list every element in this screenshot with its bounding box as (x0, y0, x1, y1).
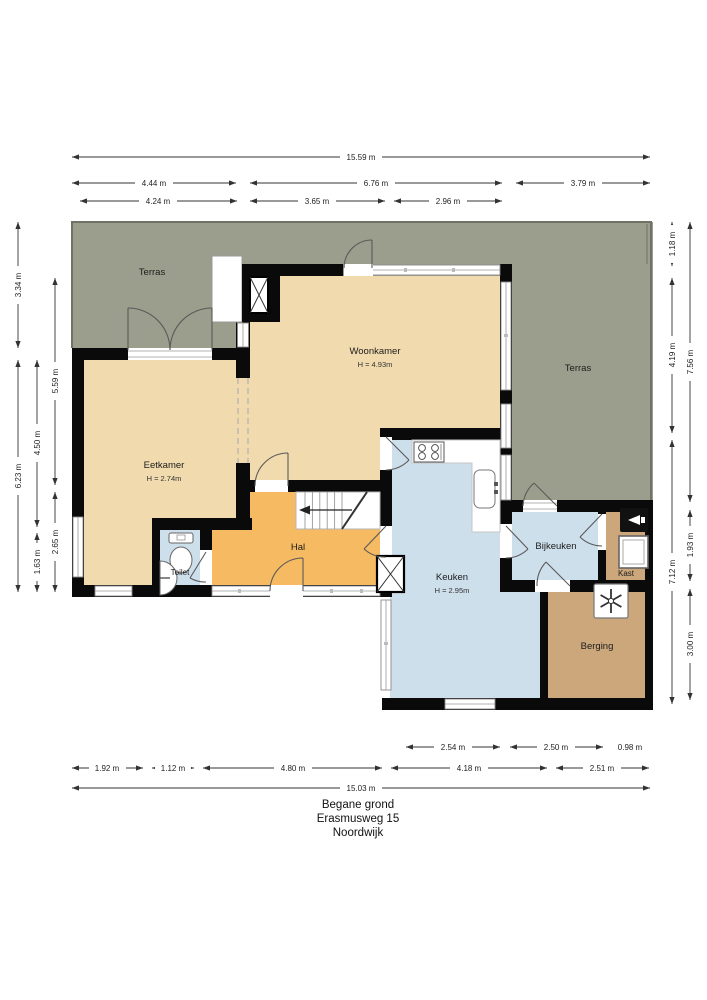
svg-text:2.54 m: 2.54 m (441, 743, 466, 752)
floor-plan-page: Terras Terras Woonkamer H = 4.93m Eetkam… (0, 0, 707, 1000)
dimensions-left: 3.34 m 6.23 m 4.50 m 1.63 m 5.59 m 2.65 … (13, 222, 60, 592)
plan-title-line2: Erasmusweg 15 (317, 813, 399, 825)
svg-text:1.18 m: 1.18 m (668, 231, 677, 256)
dim-right-a: 1.18 m (667, 222, 677, 266)
dim-right-c: 7.12 m (667, 440, 677, 704)
svg-text:4.18 m: 4.18 m (457, 764, 482, 773)
svg-text:7.56 m: 7.56 m (686, 349, 695, 374)
dim-bottom-e: 1.12 m (152, 763, 194, 773)
kitchen-left-window (381, 600, 391, 690)
terrace-right-label: Terras (565, 363, 592, 374)
svg-text:2.65 m: 2.65 m (51, 529, 60, 554)
dim-top-b: 6.76 m (250, 178, 502, 188)
svg-text:4.24 m: 4.24 m (146, 197, 171, 206)
dim-bottom-a: 2.54 m (406, 742, 500, 752)
svg-text:7.12 m: 7.12 m (668, 559, 677, 584)
svg-text:5.59 m: 5.59 m (51, 368, 60, 393)
dim-bottom-b: 2.50 m (510, 742, 603, 752)
dimensions-bottom: 2.54 m 2.50 m 0.98 m 1.92 m 1.12 m 4.80 … (72, 742, 650, 793)
dimensions-right: 1.18 m 4.19 m 7.12 m 7.56 m 1.93 m 3.00 … (667, 222, 695, 704)
svg-text:1.93 m: 1.93 m (686, 532, 695, 557)
dim-left-f: 2.65 m (50, 492, 60, 592)
closet-label: Kast (618, 569, 635, 578)
meter-icon (620, 508, 648, 532)
dim-top-f: 2.96 m (394, 196, 502, 206)
utility-terrace-door-opening (523, 500, 557, 512)
svg-text:0.98 m: 0.98 m (618, 743, 643, 752)
svg-text:2.51 m: 2.51 m (590, 764, 615, 773)
dim-top-e: 3.65 m (250, 196, 385, 206)
kitchen-right-window (501, 455, 511, 500)
svg-text:15.59 m: 15.59 m (347, 153, 376, 162)
storage-room-label: Berging (581, 641, 614, 652)
dim-left-d: 1.63 m (32, 533, 42, 592)
dim-right-e: 1.93 m (685, 510, 695, 581)
svg-text:4.50 m: 4.50 m (33, 430, 42, 455)
plan-title-line3: Noordwijk (333, 827, 384, 839)
floor-plan: Terras Terras Woonkamer H = 4.93m Eetkam… (0, 0, 707, 1000)
sink-icon (474, 470, 498, 508)
boiler-icon (619, 536, 648, 568)
dim-right-f: 3.00 m (685, 589, 695, 700)
duct-icon (377, 556, 404, 592)
svg-text:2.96 m: 2.96 m (436, 197, 461, 206)
utility-room-label: Bijkeuken (535, 541, 576, 552)
dim-left-b: 6.23 m (13, 360, 23, 592)
dim-top-d: 4.24 m (80, 196, 237, 206)
svg-text:4.44 m: 4.44 m (142, 179, 167, 188)
kitchen-bottom-window (445, 699, 495, 709)
living-room-top-window (372, 265, 500, 275)
dim-top-c: 3.79 m (516, 178, 650, 188)
dim-bottom-h: 2.51 m (556, 763, 649, 773)
dim-bottom-c: 0.98 m (612, 742, 648, 752)
hallway-label: Hal (291, 542, 305, 553)
living-room-right-window-2 (501, 404, 511, 448)
svg-text:3.79 m: 3.79 m (571, 179, 596, 188)
terrace-left-label: Terras (139, 267, 166, 278)
dim-bottom-d: 1.92 m (72, 763, 143, 773)
living-room-right-window-1 (501, 282, 511, 390)
dim-bottom-g: 4.18 m (391, 763, 547, 773)
dining-room-bottom-window (95, 586, 132, 596)
dim-top-a: 4.44 m (72, 178, 236, 188)
dim-left-c: 4.50 m (32, 360, 42, 527)
chimney-side-window (238, 323, 249, 347)
gas-hob-icon (414, 442, 444, 462)
chimney-flue-icon (250, 277, 268, 313)
dining-room-label: Eetkamer (144, 460, 185, 471)
dim-right-b: 4.19 m (667, 278, 677, 433)
svg-text:1.63 m: 1.63 m (33, 549, 42, 574)
svg-text:4.80 m: 4.80 m (281, 764, 306, 773)
ventilation-fan-icon (594, 584, 628, 618)
toilet-label: Toilet (171, 568, 190, 577)
svg-text:6.23 m: 6.23 m (14, 463, 23, 488)
dim-left-a: 3.34 m (13, 222, 23, 348)
dining-room-left-window (73, 517, 83, 577)
dim-bottom-total: 15.03 m (72, 783, 650, 793)
svg-text:4.19 m: 4.19 m (668, 342, 677, 367)
kitchen-height: H = 2.95m (435, 586, 470, 595)
svg-text:6.76 m: 6.76 m (364, 179, 389, 188)
chimney (212, 256, 280, 322)
stairs (296, 492, 380, 529)
svg-text:3.65 m: 3.65 m (305, 197, 330, 206)
dining-room-height: H = 2.74m (147, 474, 182, 483)
plan-title: Begane grond Erasmusweg 15 Noordwijk (317, 799, 399, 839)
dim-total-width: 15.59 m (72, 152, 650, 162)
svg-text:2.50 m: 2.50 m (544, 743, 569, 752)
svg-text:1.92 m: 1.92 m (95, 764, 120, 773)
dim-right-d: 7.56 m (685, 222, 695, 502)
living-room-label: Woonkamer (349, 346, 400, 357)
svg-text:1.12 m: 1.12 m (161, 764, 186, 773)
dimensions-top: 15.59 m 4.44 m 6.76 m 3.79 m 4.24 m 3.65… (72, 152, 650, 206)
dim-left-e: 5.59 m (50, 278, 60, 485)
kitchen-label: Keuken (436, 572, 468, 583)
svg-text:3.00 m: 3.00 m (686, 631, 695, 656)
dim-bottom-f: 4.80 m (203, 763, 382, 773)
living-room-height: H = 4.93m (358, 360, 393, 369)
svg-text:3.34 m: 3.34 m (14, 272, 23, 297)
svg-text:15.03 m: 15.03 m (347, 784, 376, 793)
plan-title-line1: Begane grond (322, 799, 394, 811)
